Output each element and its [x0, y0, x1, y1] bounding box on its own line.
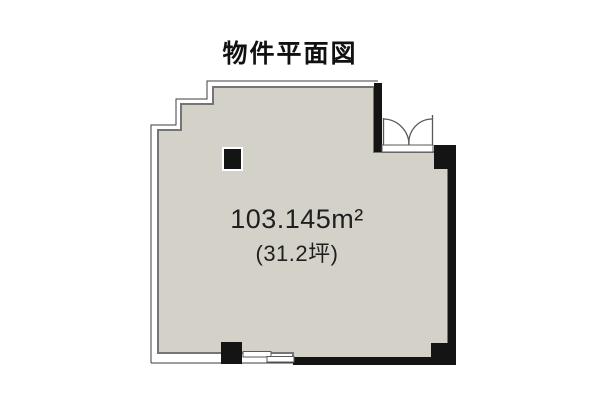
door-swing-arc-left [384, 119, 410, 145]
floor-plan-page: 物件平面図 103.145m² (31.2坪) [0, 0, 600, 400]
area-tsubo-label: (31.2坪) [256, 241, 339, 266]
floor-plan-diagram: 103.145m² (31.2坪) [0, 0, 600, 400]
double-swing-door-symbol [382, 115, 433, 152]
right-wall [448, 145, 456, 365]
door-jamb-wall [374, 83, 382, 152]
door-swing-arc-right [409, 119, 433, 145]
pillar-bottom-left [221, 342, 242, 364]
door-sill [382, 145, 433, 152]
sliding-window-panel [267, 357, 294, 363]
pillar-bottom-right [431, 343, 452, 364]
area-m2-label: 103.145m² [230, 204, 364, 234]
pillar-top-left [223, 148, 242, 170]
